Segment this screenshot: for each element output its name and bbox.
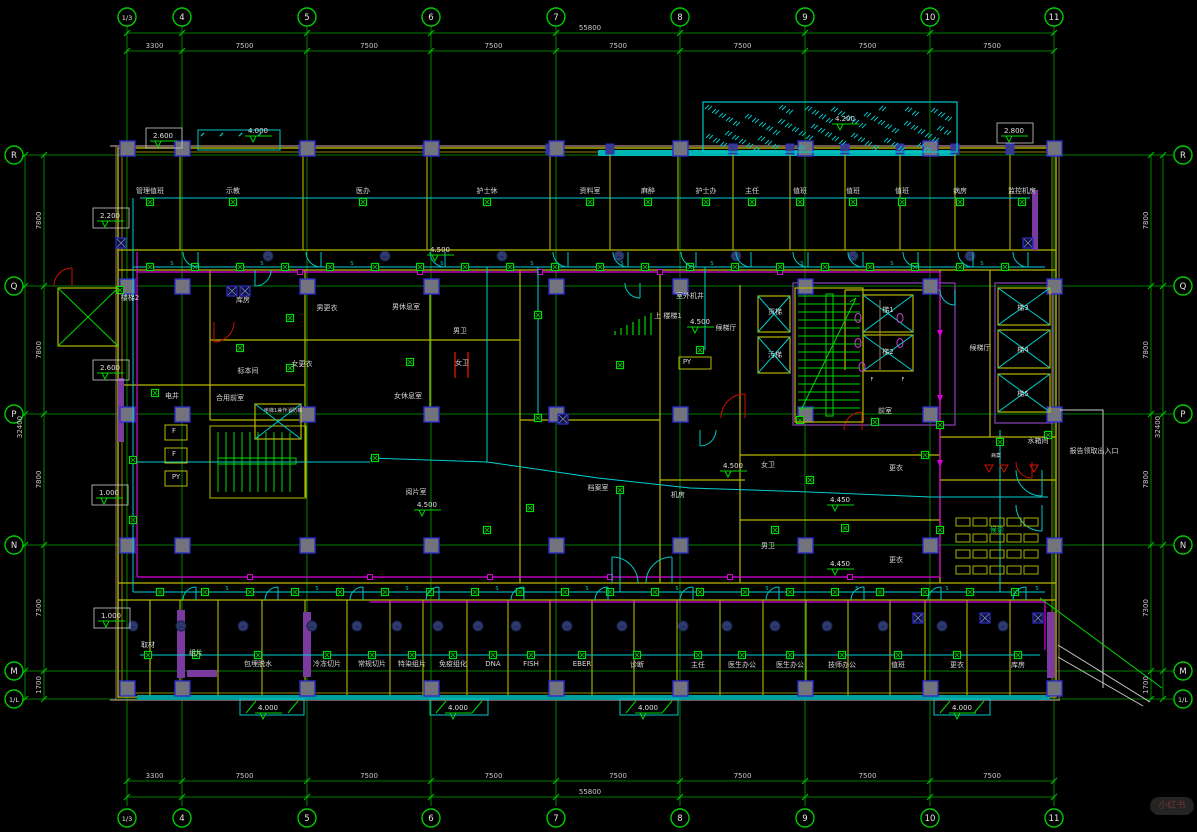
dim-text: 7500	[609, 772, 627, 780]
circuit	[370, 458, 1048, 497]
hatch-mark	[728, 132, 732, 136]
room-label: 合用前室	[216, 393, 244, 402]
grid-bubble-label: 6	[428, 13, 433, 23]
switch-letter: S	[800, 261, 803, 267]
door-swing	[265, 587, 278, 600]
elevation-triangle	[260, 713, 266, 719]
stair-arrow	[800, 298, 856, 412]
waiting-chair	[1024, 566, 1038, 574]
dim-text: 7500	[236, 42, 254, 50]
cable-device	[488, 575, 493, 580]
dim-text: 7800	[35, 471, 43, 489]
hatch-mark	[773, 130, 777, 134]
hatch-mark	[805, 106, 809, 110]
switch-letter: S	[765, 586, 768, 592]
hatch-mark	[786, 109, 790, 113]
cable-device	[658, 270, 663, 275]
room-label: 诊断	[630, 660, 644, 669]
waiting-chair	[973, 566, 987, 574]
hatch-mark	[736, 122, 740, 126]
elevation-triangle	[832, 505, 838, 511]
room-label: 库房	[236, 295, 250, 304]
elevation-triangle	[101, 498, 107, 504]
hatch-mark	[921, 130, 925, 134]
grid-bubble-label: 1/3	[122, 815, 132, 823]
hatch-mark	[705, 105, 709, 109]
column	[549, 681, 564, 696]
column	[424, 538, 439, 553]
line	[472, 701, 482, 713]
column	[1047, 407, 1062, 422]
dim-text: 7500	[236, 772, 254, 780]
dim-text: 7800	[1142, 341, 1150, 359]
room-label: 女卫	[761, 460, 775, 469]
hatch-mark	[799, 131, 803, 135]
elevation-value: 2.800	[1004, 127, 1024, 135]
hatch-mark	[858, 137, 862, 141]
cable-device	[848, 575, 853, 580]
room-label: 档案室	[588, 483, 609, 492]
hatch-mark	[882, 107, 886, 111]
hatch-mark	[908, 108, 912, 112]
room-label: 医办	[356, 186, 370, 195]
room-label: 值班	[895, 186, 909, 195]
cable-device	[368, 575, 373, 580]
grid-bubble-label: 4	[179, 814, 184, 824]
hatch-mark	[825, 132, 829, 136]
hatch-mark	[885, 124, 889, 128]
dim-text: 3300	[146, 772, 164, 780]
dim-overall-left: 32400	[16, 416, 24, 438]
switch-letter: S	[980, 261, 983, 267]
column	[673, 681, 688, 696]
elevation-triangle	[954, 713, 960, 719]
hatch-mark	[712, 109, 716, 113]
cable-arrow	[937, 460, 943, 467]
elevation-triangle	[832, 569, 838, 575]
hatch-mark	[716, 139, 720, 143]
column	[798, 141, 813, 156]
hatch-mark	[912, 111, 916, 115]
room-label: 麻醉	[641, 186, 655, 195]
ceiling-fixture-icon	[678, 621, 688, 631]
column	[549, 141, 564, 156]
room-label: 电井	[165, 391, 179, 400]
waiting-chair	[1007, 550, 1021, 558]
floorplan-canvas: 3300750075007500750075007500750055800330…	[0, 0, 1197, 832]
hatch-mark	[937, 126, 941, 130]
room-label: 常规切片	[358, 659, 386, 668]
toilet-fixture-icon	[897, 314, 903, 323]
hatch-mark	[839, 140, 843, 144]
hatch-mark	[821, 129, 825, 133]
hatch-mark	[761, 137, 765, 141]
room-label: F	[172, 450, 176, 458]
elevation-value: 4.000	[258, 704, 278, 712]
column	[175, 538, 190, 553]
dim-text: 7800	[35, 212, 43, 230]
room-label: 水箱间	[1028, 436, 1049, 445]
grid-bubble-label: 11	[1049, 814, 1060, 824]
hatch-mark	[865, 141, 869, 145]
room-label: 更衣	[889, 463, 903, 472]
hatch-mark	[748, 115, 752, 119]
grid-bubble-label: P	[11, 410, 16, 420]
ceiling-fixture-icon	[352, 621, 362, 631]
elevation-value: 4.000	[952, 704, 972, 712]
grid-bubble-label: 6	[428, 814, 433, 824]
room-label: 管理值班	[136, 186, 164, 195]
wall-accent	[187, 670, 217, 677]
column	[673, 141, 688, 156]
waiting-chair	[1024, 534, 1038, 542]
waiting-chair	[1024, 518, 1038, 526]
room-label: F	[172, 427, 176, 435]
hatch-mark	[789, 110, 793, 114]
ceiling-fixture-icon	[770, 621, 780, 631]
column	[923, 538, 938, 553]
hatch-mark	[944, 130, 948, 134]
hatch-mark	[782, 106, 786, 110]
column	[175, 279, 190, 294]
toilet-fixture-icon	[855, 314, 861, 323]
ceiling-fixture-icon	[511, 621, 521, 631]
elevation-value: 4.500	[430, 246, 450, 254]
waiting-chair	[1007, 518, 1021, 526]
column	[424, 681, 439, 696]
room-label: 技师办公	[828, 660, 856, 669]
hatch-mark	[879, 106, 883, 110]
door-swing	[940, 290, 955, 305]
switch-letter: S	[890, 261, 893, 267]
grid-bubble-label: 9	[802, 814, 807, 824]
dim-text: 7500	[360, 42, 378, 50]
elevation-value: 2.600	[100, 364, 120, 372]
hatch-mark	[795, 128, 799, 132]
hatch-mark	[802, 132, 806, 136]
ceiling-fixture-icon	[238, 621, 248, 631]
ceiling-fixture-icon	[392, 621, 402, 631]
door-swing	[625, 283, 640, 298]
dim-overall-top: 55800	[579, 24, 601, 32]
column	[175, 407, 190, 422]
wall-post	[606, 144, 614, 154]
dim-text: 7500	[734, 772, 752, 780]
column	[300, 407, 315, 422]
column	[1047, 141, 1062, 156]
room-label: 护士休	[477, 186, 498, 195]
room-label: 上 楼梯1	[654, 311, 682, 320]
threshold-mark	[1030, 465, 1038, 472]
column	[798, 538, 813, 553]
stair-rail	[218, 458, 296, 464]
ceiling-fixture-icon	[128, 621, 138, 631]
hatch-mark	[809, 136, 813, 140]
elevation-triangle	[692, 327, 698, 333]
hatch-mark	[854, 134, 858, 138]
column	[1047, 538, 1062, 553]
room-label: 主任	[745, 186, 759, 195]
room-label: 医生办公	[776, 660, 804, 669]
line	[246, 701, 256, 713]
room-label: 梯2	[882, 347, 893, 356]
column	[300, 681, 315, 696]
line	[436, 701, 446, 713]
column	[549, 538, 564, 553]
switch-letter: S	[495, 586, 498, 592]
room-label: 包埋脱水	[244, 659, 272, 668]
room-label: 主任	[691, 660, 705, 669]
ceiling-fixture-icon	[176, 621, 186, 631]
dim-text: 7800	[35, 341, 43, 359]
hatch-mark	[758, 136, 762, 140]
elevation-triangle	[250, 136, 256, 142]
room-label: 梯5	[1017, 389, 1028, 398]
grid-bubble-label: R	[11, 151, 17, 161]
hatch-mark	[781, 120, 785, 124]
grid-bubble-label: 9	[802, 13, 807, 23]
ceiling-fixture-icon	[822, 621, 832, 631]
waiting-chair	[973, 518, 987, 526]
grid-bubble-label: 1/L	[9, 696, 19, 704]
switch-letter: S	[440, 261, 443, 267]
column	[175, 681, 190, 696]
switch-letter: S	[170, 261, 173, 267]
elevation-value: 4.000	[248, 127, 268, 135]
dim-text: 1700	[1142, 676, 1150, 694]
ceiling-fixture-icon	[617, 621, 627, 631]
cable-device	[298, 270, 303, 275]
elevation-value: 4.500	[417, 501, 437, 509]
column	[673, 538, 688, 553]
room-label: 电梯1兼作消防梯	[264, 407, 302, 414]
hatch-mark	[788, 124, 792, 128]
dim-text: 7300	[35, 599, 43, 617]
hatch-mark	[811, 124, 815, 128]
room-label: 更衣	[889, 555, 903, 564]
cad-floorplan-screenshot: 3300750075007500750075007500750055800330…	[0, 0, 1197, 832]
elevation-triangle	[725, 471, 731, 477]
hatch-mark	[925, 133, 929, 137]
door-swing	[54, 268, 72, 286]
waiting-chair	[973, 550, 987, 558]
hatch-mark	[713, 138, 717, 142]
hatch-mark	[201, 133, 204, 136]
hatch-mark	[732, 135, 736, 139]
hatch-mark	[874, 117, 878, 121]
switch-letter: S	[710, 261, 713, 267]
dim-text: 7800	[1142, 212, 1150, 230]
line	[940, 701, 950, 713]
hatch-mark	[785, 123, 789, 127]
dim-text: 7500	[609, 42, 627, 50]
switch-letter: S	[675, 586, 678, 592]
switch-letter: S	[530, 261, 533, 267]
switch-letter: S	[315, 586, 318, 592]
hatch-mark	[940, 127, 944, 131]
hatch-mark	[779, 105, 783, 109]
column	[1047, 681, 1062, 696]
hatch-mark	[709, 135, 713, 139]
line	[288, 701, 298, 713]
room-label: 病案	[991, 452, 1001, 459]
room-label: 男卫	[453, 327, 467, 335]
hatch-mark	[239, 133, 242, 136]
column	[673, 407, 688, 422]
room-label: 室外机井	[676, 291, 704, 300]
elevation-value: 2.200	[100, 212, 120, 220]
hatch-mark	[862, 124, 866, 128]
dim-text: 3300	[146, 42, 164, 50]
waiting-chair	[1007, 534, 1021, 542]
hatch-mark	[733, 121, 737, 125]
elevation-value: 1.000	[101, 612, 121, 620]
ceiling-fixture-icon	[497, 251, 507, 261]
dim-text: 7500	[859, 42, 877, 50]
ceiling-fixture-icon	[307, 621, 317, 631]
plan-layer	[54, 102, 1162, 715]
hatch-mark	[904, 121, 908, 125]
hatch-mark	[742, 140, 746, 144]
ceiling-fixture-icon	[473, 621, 483, 631]
room-label: 男卫	[761, 542, 775, 550]
hatch-mark	[762, 123, 766, 127]
door-swing	[612, 557, 638, 583]
hatch-mark	[752, 118, 756, 122]
waiting-chair	[990, 550, 1004, 558]
grid-bubble-label: N	[1180, 541, 1186, 551]
hatch-mark	[819, 114, 823, 118]
column	[120, 681, 135, 696]
hatch-mark	[755, 119, 759, 123]
hatch-mark	[859, 123, 863, 127]
room-label: 值班	[793, 186, 807, 195]
hatch-mark	[765, 140, 769, 144]
door-swing	[350, 587, 363, 600]
hatch-mark	[826, 118, 830, 122]
switch-letter: S	[1035, 586, 1038, 592]
room-label: 女休息室	[394, 391, 422, 400]
hatch-mark	[941, 113, 945, 117]
hatch-mark	[914, 126, 918, 130]
hatch-mark	[867, 113, 871, 117]
wall-post	[1006, 144, 1014, 154]
dim-text: 7500	[983, 772, 1001, 780]
hatch-mark	[726, 117, 730, 121]
elevation-triangle	[1006, 136, 1012, 142]
room-label: 污梯	[768, 350, 782, 359]
room-label: 冷冻切片	[313, 659, 341, 668]
ceiling-fixture-icon	[722, 621, 732, 631]
grid-bubble-label: P	[1180, 410, 1185, 420]
grid-bubble-label: 1/3	[122, 14, 132, 22]
hatch-mark	[915, 112, 919, 116]
dim-text: 7500	[360, 772, 378, 780]
hatch-mark	[812, 110, 816, 114]
line	[626, 701, 636, 713]
ceiling-fixture-icon	[937, 621, 947, 631]
switch-letter: S	[350, 261, 353, 267]
room-label: 组片	[189, 648, 203, 657]
hatch-mark	[892, 128, 896, 132]
hatch-mark	[719, 113, 723, 117]
room-label: 梯3	[1017, 303, 1028, 312]
room-label: 机房	[671, 490, 685, 499]
elevation-triangle	[419, 510, 425, 516]
elevation-triangle	[103, 621, 109, 627]
elevation-value: 4.000	[448, 704, 468, 712]
hatch-mark	[725, 131, 729, 135]
room-label: 报告领取出入口	[1070, 446, 1119, 455]
grid-bubble-label: 1/L	[1178, 696, 1188, 704]
room-label: 更衣	[950, 660, 964, 669]
hatch-mark	[828, 133, 832, 137]
room-label: 值班	[891, 660, 905, 669]
dim-overall-right: 32400	[1154, 416, 1162, 438]
dim-overall-bottom: 55800	[579, 788, 601, 796]
room-label: 货梯	[768, 307, 782, 316]
hatch-mark	[934, 109, 938, 113]
hatch-mark	[745, 114, 749, 118]
hatch-mark	[818, 128, 822, 132]
elevation-value: 4.500	[723, 462, 743, 470]
column	[923, 407, 938, 422]
room-label: 阅片室	[406, 487, 427, 496]
door-swing	[1016, 462, 1032, 478]
room-label: 候梯厅	[716, 323, 737, 332]
elevation-triangle	[102, 221, 108, 227]
elevation-value: 4.500	[690, 318, 710, 326]
hatch-mark	[918, 129, 922, 133]
door-swing	[214, 322, 234, 342]
toilet-fixture-icon	[859, 363, 865, 372]
door-swing	[306, 252, 321, 267]
elevation-value: 4.200	[835, 115, 855, 123]
hatch-mark	[947, 131, 951, 135]
grid-bubble-label: M	[10, 667, 17, 677]
room-label: 标本间	[238, 366, 259, 375]
hatch-mark	[835, 137, 839, 141]
hatch-mark	[871, 116, 875, 120]
room-label: 女卫	[455, 358, 469, 367]
door-swing	[183, 587, 196, 600]
column	[1047, 279, 1062, 294]
cable-arrow	[937, 395, 943, 402]
room-label: 特染组片	[398, 659, 426, 668]
hatch-mark	[907, 122, 911, 126]
hatch-mark	[861, 138, 865, 142]
door-swing	[1013, 252, 1028, 267]
column	[300, 538, 315, 553]
line	[662, 701, 672, 713]
cable-device	[248, 575, 253, 580]
dim-text: 7500	[734, 42, 752, 50]
room-label: DNA	[485, 660, 501, 668]
hatch-mark	[851, 133, 855, 137]
waiting-chair	[956, 534, 970, 542]
hatch-mark	[834, 108, 838, 112]
hatch-mark	[822, 115, 826, 119]
grid-bubble-label: 11	[1049, 13, 1060, 23]
elevation-triangle	[102, 373, 108, 379]
elevation-triangle	[450, 713, 456, 719]
waiting-chair	[1024, 550, 1038, 558]
grid-bubble-label: Q	[11, 282, 18, 292]
hatch-mark	[778, 119, 782, 123]
column	[424, 141, 439, 156]
toilet-fixture-icon	[855, 339, 861, 348]
hatch-mark	[806, 135, 810, 139]
